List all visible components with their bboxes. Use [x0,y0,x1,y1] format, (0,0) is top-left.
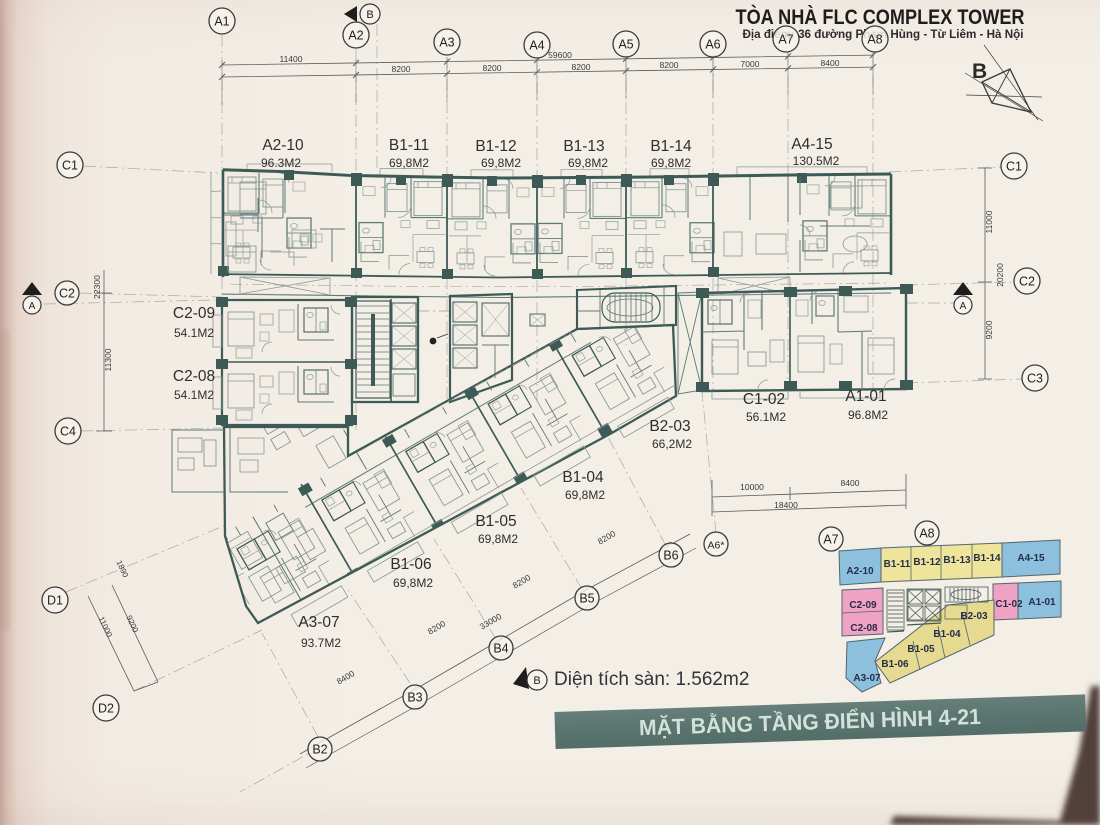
svg-text:A3-07: A3-07 [298,614,339,631]
svg-text:B1-04: B1-04 [933,629,961,640]
svg-text:B1-13: B1-13 [943,555,971,566]
svg-text:B: B [533,675,540,687]
svg-text:A6*: A6* [708,539,725,551]
svg-text:69,8M2: 69,8M2 [389,156,429,170]
svg-text:69,8M2: 69,8M2 [478,532,518,546]
svg-text:A: A [29,301,36,312]
svg-text:7000: 7000 [741,59,760,69]
svg-text:8400: 8400 [841,478,860,488]
svg-text:D2: D2 [98,701,114,715]
svg-text:56.1M2: 56.1M2 [746,410,786,424]
svg-text:A4-15: A4-15 [1017,553,1045,564]
svg-text:A3: A3 [439,35,454,49]
svg-text:A: A [960,301,967,312]
svg-text:66,2M2: 66,2M2 [652,437,692,451]
svg-text:59600: 59600 [548,50,572,60]
svg-text:69,8M2: 69,8M2 [393,576,433,590]
svg-text:B1-06: B1-06 [881,659,909,670]
svg-text:C2: C2 [59,286,75,300]
svg-text:9200: 9200 [984,320,994,339]
svg-text:A2-10: A2-10 [846,566,874,577]
svg-text:96.8M2: 96.8M2 [848,408,888,422]
svg-text:B1-12: B1-12 [475,138,516,155]
svg-text:C2-08: C2-08 [850,623,878,634]
svg-text:B4: B4 [493,641,508,655]
svg-text:54.1M2: 54.1M2 [174,326,214,340]
svg-text:B2: B2 [312,742,327,756]
svg-text:69,8M2: 69,8M2 [651,156,691,170]
svg-text:A1-01: A1-01 [1028,597,1056,608]
svg-text:B1-13: B1-13 [563,138,604,155]
svg-text:B1-12: B1-12 [913,557,941,568]
svg-text:8400: 8400 [821,58,840,68]
svg-text:B5: B5 [579,591,594,605]
svg-text:C1: C1 [1006,159,1022,173]
svg-text:B2-03: B2-03 [960,611,988,622]
svg-text:A1: A1 [214,14,229,28]
svg-text:10000: 10000 [740,482,764,492]
svg-text:11400: 11400 [279,54,302,64]
svg-text:TÒA NHÀ FLC COMPLEX TOWER: TÒA NHÀ FLC COMPLEX TOWER [736,5,1025,29]
svg-text:8200: 8200 [660,60,679,70]
svg-text:130.5M2: 130.5M2 [793,154,840,168]
svg-text:B3: B3 [407,690,422,704]
svg-text:A2: A2 [348,28,363,42]
svg-text:Diện tích sàn: 1.562m2: Diện tích sàn: 1.562m2 [554,669,749,690]
svg-text:A4: A4 [529,38,544,52]
svg-text:A6: A6 [705,37,720,51]
svg-text:93.7M2: 93.7M2 [301,636,341,650]
svg-text:22300: 22300 [92,275,102,299]
svg-text:B1-05: B1-05 [907,644,935,655]
svg-text:A4-15: A4-15 [791,136,832,153]
svg-text:B1-05: B1-05 [475,513,516,530]
svg-text:B2-03: B2-03 [649,418,690,435]
svg-text:B1-14: B1-14 [973,553,1001,564]
svg-text:96.3M2: 96.3M2 [261,156,301,170]
svg-text:B1-06: B1-06 [390,556,431,573]
svg-text:8200: 8200 [483,63,502,73]
svg-text:A8: A8 [919,526,934,540]
svg-text:11000: 11000 [984,210,994,233]
svg-text:69,8M2: 69,8M2 [565,488,605,502]
svg-text:54.1M2: 54.1M2 [174,388,214,402]
svg-text:A7: A7 [823,532,838,546]
svg-text:B6: B6 [663,548,678,562]
svg-text:C1-02: C1-02 [995,599,1023,610]
svg-text:B: B [972,60,987,83]
svg-text:C2-09: C2-09 [849,600,877,611]
svg-text:C2-09: C2-09 [173,305,215,322]
svg-text:B1-04: B1-04 [562,469,604,486]
svg-text:69,8M2: 69,8M2 [568,156,608,170]
svg-text:A1-01: A1-01 [845,388,886,405]
svg-text:11300: 11300 [103,348,113,371]
svg-text:B: B [366,9,373,21]
svg-text:69,8M2: 69,8M2 [481,156,521,170]
svg-text:B1-11: B1-11 [884,559,911,570]
svg-text:A5: A5 [618,37,633,51]
svg-text:C2-08: C2-08 [173,368,215,385]
svg-text:18400: 18400 [774,500,798,510]
svg-text:C1: C1 [62,158,78,172]
svg-text:C4: C4 [60,424,76,438]
svg-text:D1: D1 [47,593,63,607]
svg-text:20200: 20200 [995,263,1005,287]
svg-text:8200: 8200 [392,64,411,74]
svg-text:C2: C2 [1019,274,1035,288]
svg-text:A7: A7 [778,32,793,46]
svg-text:B1-14: B1-14 [650,138,692,155]
svg-text:C1-02: C1-02 [743,391,785,408]
svg-text:C3: C3 [1027,371,1043,385]
svg-text:B1-11: B1-11 [389,137,429,154]
svg-text:A8: A8 [867,32,882,46]
svg-text:8200: 8200 [572,62,591,72]
svg-text:A3-07: A3-07 [853,673,881,684]
svg-text:A2-10: A2-10 [262,137,304,154]
